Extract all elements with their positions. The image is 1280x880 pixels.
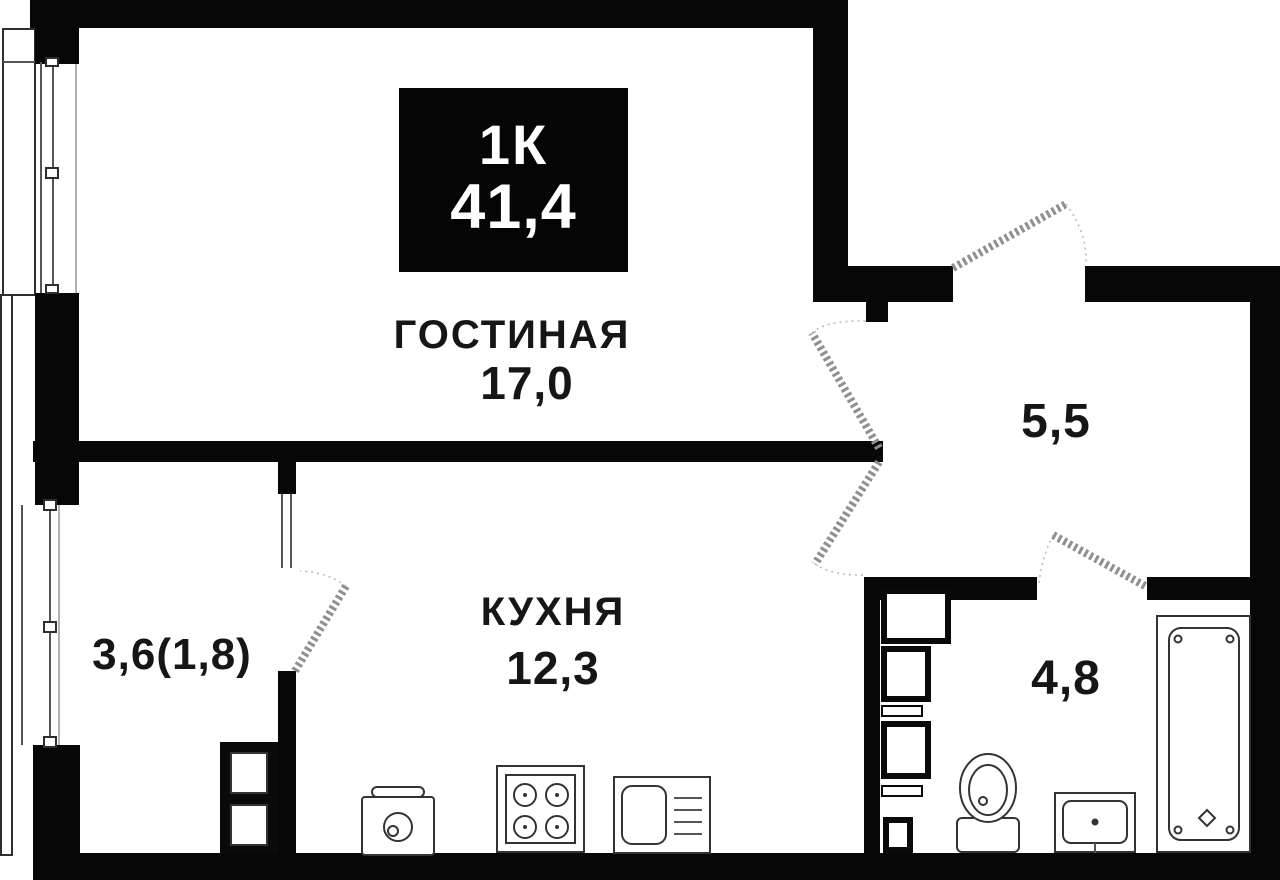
apartment-type-badge: 1К 41,4: [399, 88, 628, 272]
kitchen-sink-icon: [614, 777, 710, 853]
outer-contour: [1, 29, 35, 855]
bathtub-icon: [1157, 616, 1250, 852]
kitchen-balcony-window: [282, 494, 291, 568]
bathroom-sink-icon: [1055, 793, 1135, 853]
toilet-icon: [957, 754, 1019, 852]
balcony-glazing: [22, 500, 59, 747]
apartment-type-label: 1К: [479, 117, 548, 173]
bathroom-door: [1039, 535, 1145, 586]
washing-machine-icon: [362, 787, 434, 855]
balcony-door: [295, 571, 346, 671]
living-room-door: [812, 321, 879, 448]
kitchen-name: КУХНЯ: [481, 590, 626, 635]
entrance-door: [953, 204, 1086, 268]
stove-icon: [497, 766, 584, 852]
kitchen-area: 12,3: [506, 641, 600, 695]
bathroom-area: 4,8: [1031, 651, 1101, 706]
bathroom-shaft: [882, 591, 948, 850]
walls: [30, 0, 1280, 880]
kitchen-door: [815, 462, 879, 575]
apartment-total-area: 41,4: [450, 173, 577, 242]
living-room-area: 17,0: [480, 356, 574, 410]
living-room-name: ГОСТИНАЯ: [394, 313, 631, 358]
balcony-shaft: [220, 742, 278, 854]
floor-plan: 1К 41,4 ГОСТИНАЯ 17,0 КУХНЯ 12,3 3,6(1,8…: [0, 0, 1280, 880]
hallway-area: 5,5: [1021, 394, 1091, 449]
balcony-area: 3,6(1,8): [92, 630, 252, 680]
living-room-window: [41, 58, 76, 293]
